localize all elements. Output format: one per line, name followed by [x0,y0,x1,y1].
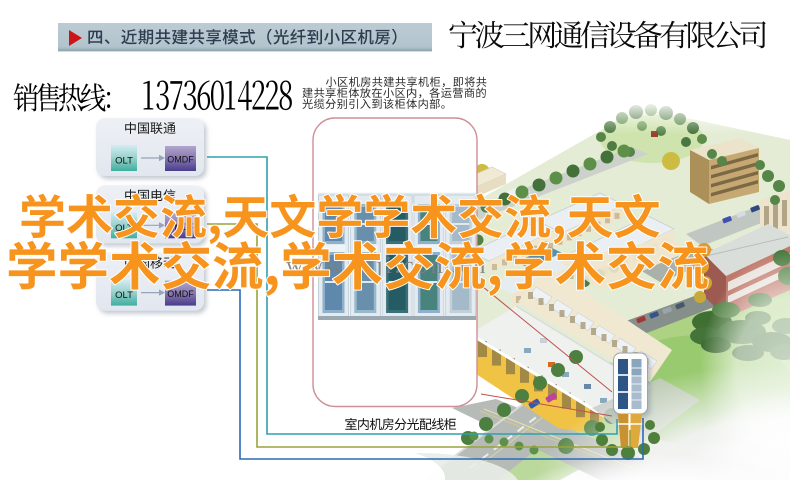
svg-text:OMDF: OMDF [167,155,194,165]
svg-text:OMDF: OMDF [167,289,194,299]
svg-text:OLT: OLT [115,290,133,301]
svg-text:OLT: OLT [115,156,133,167]
